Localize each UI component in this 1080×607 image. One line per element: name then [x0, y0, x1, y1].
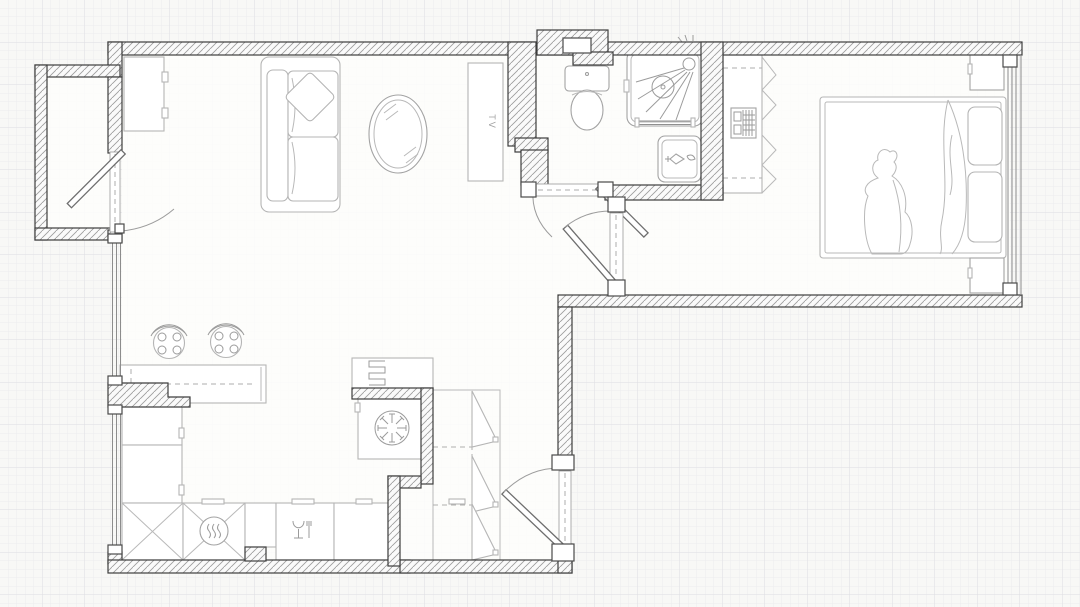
nightstand	[968, 53, 1004, 90]
ventilation-shaft	[563, 38, 591, 53]
kitchen-cabinets	[122, 403, 184, 503]
stove	[183, 503, 245, 560]
floor-plan-canvas: TV	[0, 0, 1080, 607]
fan-appliance	[355, 397, 426, 459]
floor-plan-page: TV	[0, 0, 1080, 607]
tv-label: TV	[487, 114, 497, 130]
pillow	[968, 107, 1002, 165]
nightstand	[968, 258, 1004, 293]
radiator	[352, 358, 433, 389]
sofa-backrest	[267, 70, 288, 201]
wall-bottom-closet	[400, 560, 572, 573]
balcony-floor	[47, 77, 110, 228]
drawer-unit	[731, 108, 756, 138]
wall-living-bath	[508, 42, 536, 146]
wall-bedroom-bottom	[558, 295, 1022, 307]
wall-bath-right	[701, 42, 723, 200]
wall-balcony-left	[35, 65, 47, 240]
tall-cabinet	[124, 57, 168, 131]
wall-entry-header	[108, 77, 122, 153]
wall-bottom-notch	[245, 547, 266, 561]
wall-balcony-bottom	[35, 228, 120, 240]
coffee-table	[369, 95, 427, 173]
wall-closet-right	[558, 307, 572, 457]
sofa	[261, 57, 340, 212]
dishwasher	[276, 503, 334, 560]
counter	[334, 503, 388, 560]
wall-balcony-top	[35, 65, 120, 77]
wall-bottom-kitchen	[108, 560, 410, 573]
wash-basin	[658, 136, 701, 182]
tv-stand: TV	[468, 63, 503, 181]
sofa-cushion	[288, 137, 338, 201]
counter	[245, 503, 276, 547]
pillow	[968, 172, 1002, 242]
wall-bath-pilaster	[573, 52, 613, 65]
corner-cabinet	[122, 503, 183, 560]
double-bed	[820, 97, 1006, 258]
